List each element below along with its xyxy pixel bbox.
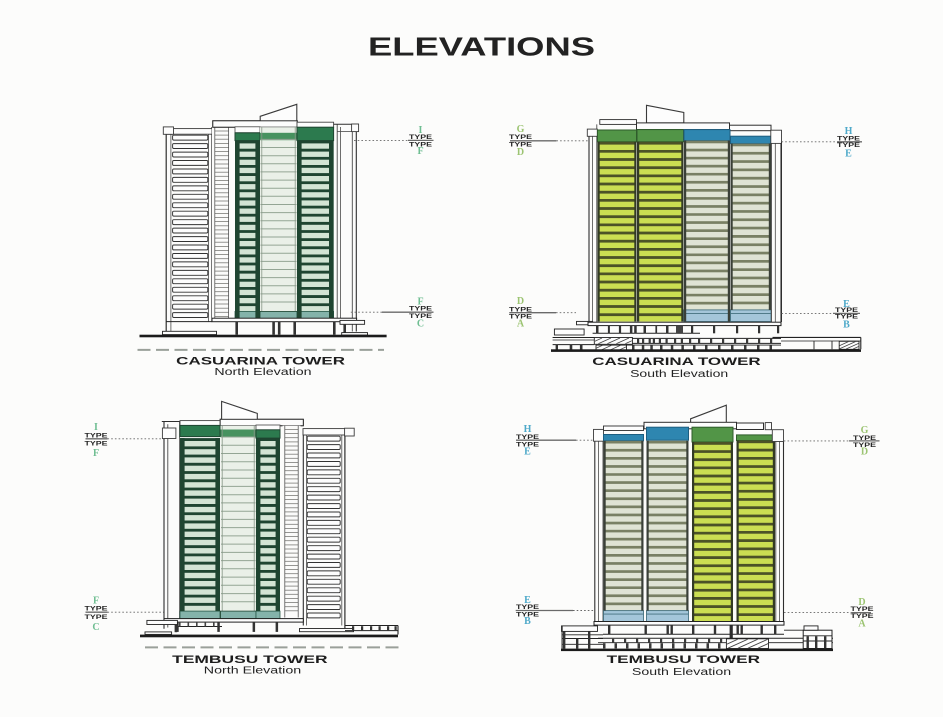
svg-text:TYPE: TYPE (85, 606, 109, 613)
svg-text:B: B (524, 616, 531, 627)
svg-text:E: E (524, 447, 531, 458)
svg-text:C: C (92, 622, 99, 633)
svg-text:TEMBUSU TOWER: TEMBUSU TOWER (172, 654, 327, 666)
svg-text:A: A (517, 318, 525, 329)
svg-text:CASUARINA TOWER: CASUARINA TOWER (176, 356, 345, 368)
svg-text:TYPE: TYPE (85, 614, 109, 621)
svg-text:D: D (517, 147, 524, 158)
svg-text:F: F (93, 448, 99, 459)
svg-text:CASUARINA TOWER: CASUARINA TOWER (592, 356, 760, 368)
svg-text:F: F (417, 146, 423, 157)
svg-text:TYPE: TYPE (509, 134, 533, 141)
svg-text:D: D (861, 447, 868, 458)
svg-text:North Elevation: North Elevation (214, 367, 311, 378)
svg-text:TYPE: TYPE (509, 306, 533, 313)
svg-text:B: B (843, 320, 850, 331)
svg-text:E: E (845, 148, 852, 159)
svg-text:TYPE: TYPE (409, 134, 433, 141)
svg-text:TYPE: TYPE (853, 435, 877, 442)
svg-text:TYPE: TYPE (516, 434, 540, 441)
svg-text:South Elevation: South Elevation (632, 667, 731, 678)
svg-text:C: C (417, 319, 424, 330)
svg-text:TYPE: TYPE (516, 604, 540, 611)
svg-text:TEMBUSU TOWER: TEMBUSU TOWER (607, 654, 760, 666)
svg-text:TYPE: TYPE (851, 606, 875, 613)
svg-text:D: D (517, 296, 524, 307)
svg-text:A: A (858, 619, 866, 630)
svg-text:ELEVATIONS: ELEVATIONS (368, 34, 595, 62)
svg-text:TYPE: TYPE (85, 440, 109, 447)
svg-text:South Elevation: South Elevation (630, 369, 728, 380)
svg-text:TYPE: TYPE (85, 432, 109, 439)
svg-text:North Elevation: North Elevation (204, 666, 301, 677)
svg-text:TYPE: TYPE (409, 306, 433, 313)
